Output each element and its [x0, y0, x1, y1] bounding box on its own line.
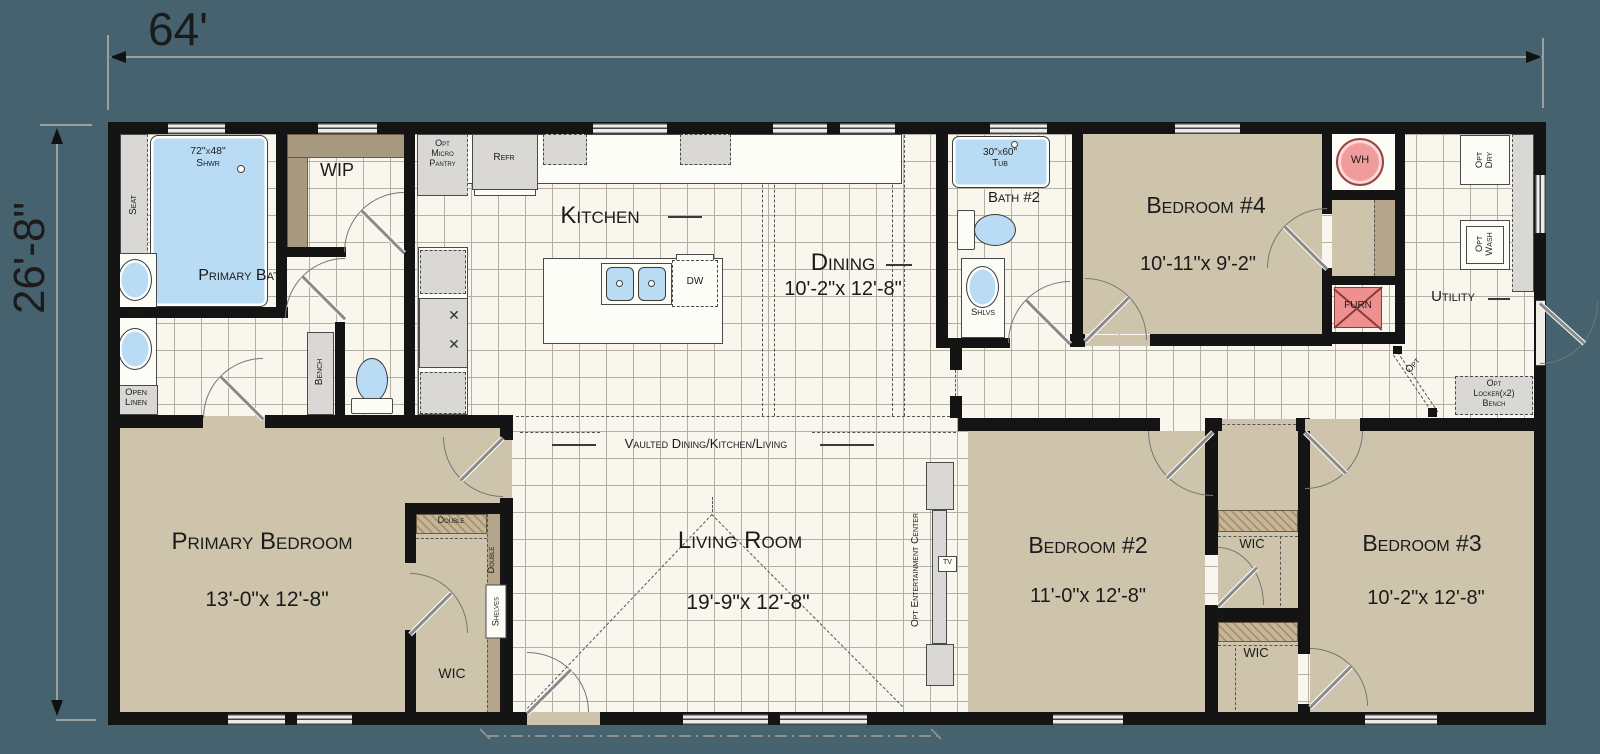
wall: [108, 415, 203, 428]
wall: [405, 630, 416, 713]
wall: [405, 503, 513, 514]
closet-rod-line: [1374, 200, 1375, 276]
furn-label: FURN: [1334, 300, 1382, 311]
wall: [276, 122, 287, 318]
leader-line: [886, 264, 912, 266]
double-sink-label: DS: [122, 308, 150, 320]
wall: [1332, 276, 1395, 285]
burner-icons: ✕ ✕: [441, 301, 467, 360]
toilet-bowl: [356, 358, 388, 402]
room-label-bedroom3: Bedroom #3: [1318, 531, 1526, 556]
bench-label: Bench: [312, 342, 328, 402]
ceiling-break-line: [516, 416, 950, 417]
floorplan-canvas: ✕ ✕: [0, 0, 1600, 754]
window: [773, 123, 827, 134]
arrow-down-icon: [51, 700, 63, 716]
window: [1053, 714, 1123, 725]
wall: [958, 418, 1160, 431]
double-rod-label: Double: [484, 530, 500, 590]
room-label-wip: WIP: [305, 161, 369, 181]
faucet: [616, 280, 623, 287]
porch-end-tick: [930, 728, 941, 739]
open-linen-label: Open Linen: [114, 388, 158, 409]
window: [990, 123, 1047, 134]
room-label-living: Living Room: [634, 528, 846, 554]
window: [168, 123, 225, 134]
room-label-primary-bath: Primary Bath: [168, 267, 318, 285]
wall: [405, 503, 416, 563]
window: [297, 714, 352, 725]
window: [228, 714, 285, 725]
wall: [404, 122, 415, 418]
room-label-utility: Utility: [1411, 289, 1495, 306]
dimension-width-label: 64': [138, 4, 218, 55]
double-rod-label: Double: [420, 516, 482, 526]
wall: [1150, 334, 1332, 346]
arrow-right-icon: [1526, 51, 1542, 63]
wall: [335, 322, 345, 415]
leader-line: [820, 444, 874, 446]
seat-label: Seat: [126, 175, 142, 235]
wall-stub: [950, 348, 962, 370]
upper-cabinet: [680, 134, 731, 165]
window: [1535, 175, 1546, 233]
opt-entertainment-label: Opt Entertainment Center: [908, 445, 924, 695]
washer-dryer-recess: [1512, 134, 1534, 292]
opt-locker-label: Opt Locker(x2) Bench: [1455, 379, 1533, 409]
bath2-sink: [966, 266, 999, 308]
ent-center-cabinet: [926, 462, 954, 510]
wic-rod-line: [416, 538, 487, 539]
base-cabinet: [420, 250, 466, 294]
opt-dry-label: Opt Dry: [1473, 135, 1497, 185]
wall: [1322, 122, 1332, 214]
wall: [1072, 122, 1083, 346]
extension-line: [107, 35, 109, 110]
leader-line: [552, 444, 596, 446]
room-size-primary-bedroom: 13'-0"x 12'-8": [171, 588, 363, 611]
shelves-label: Shelves: [486, 585, 507, 639]
wall: [1322, 332, 1405, 344]
opt-micro-pantry-label: Opt Micro Pantry: [417, 139, 468, 169]
tv-label: TV: [938, 559, 957, 567]
opt-door-stop: [1428, 408, 1437, 417]
wall: [1395, 122, 1405, 344]
vault-apex-tick: [712, 497, 713, 512]
arrow-up-icon: [51, 128, 63, 144]
room-size-dining: 10'-2"x 12'-8": [757, 278, 929, 300]
shower-label: 72"x48" Shwr: [165, 146, 251, 169]
dw-label: DW: [672, 276, 718, 287]
opt-porch-line: [487, 735, 937, 737]
room-label-bedroom2: Bedroom #2: [984, 533, 1192, 558]
wic-label: WIC: [1222, 537, 1282, 551]
wall: [276, 247, 346, 257]
room-label-bedroom4: Bedroom #4: [1100, 193, 1312, 218]
room-label-bath2: Bath #2: [962, 190, 1066, 207]
wip-counter: [287, 134, 406, 158]
wic-label: WIC: [422, 666, 482, 681]
window: [780, 714, 867, 725]
wic-opening-line: [1222, 424, 1296, 425]
wall: [1360, 418, 1544, 431]
vaulted-note: Vaulted Dining/Kitchen/Living: [593, 437, 819, 451]
refrigerator-handle: [474, 189, 536, 196]
vanity-sink: [118, 259, 152, 301]
upper-cabinet: [543, 134, 587, 165]
refr-label: Refr: [472, 152, 536, 163]
faucet: [648, 280, 655, 287]
wall: [1332, 190, 1395, 200]
room-label-kitchen: Kitchen: [530, 203, 670, 229]
opt-door-stop: [1393, 346, 1402, 354]
window: [1175, 123, 1240, 134]
shlvs-label: Shlvs: [959, 308, 1007, 318]
window: [593, 123, 667, 134]
arrow-left-icon: [110, 51, 126, 63]
wall: [265, 415, 513, 428]
room-label-primary-bedroom: Primary Bedroom: [136, 529, 388, 555]
toilet-bowl: [974, 214, 1016, 246]
extension-line: [1542, 38, 1544, 108]
door-threshold: [1305, 419, 1360, 431]
wall: [1205, 608, 1310, 622]
wic-label: WIC: [1226, 646, 1286, 660]
ceiling-break-line: [812, 432, 956, 433]
dimension-line-top: [110, 56, 1542, 58]
ent-center-cabinet: [926, 644, 954, 686]
cased-opening-line: [955, 370, 956, 396]
wic-rod-shelf: [1218, 510, 1298, 532]
extension-line: [56, 719, 96, 721]
wic-rod-shelf: [1218, 622, 1298, 642]
room-size-living: 19'-9"x 12'-8": [652, 591, 844, 614]
room-size-bedroom4: 10'-11"x 9'-2": [1104, 253, 1292, 275]
wall-stub: [950, 396, 962, 418]
toilet-tank: [351, 398, 393, 414]
wic-opening-threshold: [1222, 419, 1296, 431]
porch-end-tick: [479, 728, 490, 739]
bedroom4-closet-rod: [1374, 200, 1395, 276]
dimension-height-label: 26'-8": [2, 178, 58, 338]
vanity-sink: [118, 328, 152, 370]
room-size-bedroom2: 11'-0"x 12'-8": [994, 585, 1182, 607]
tub-label: 30"x60" Tub: [962, 147, 1038, 169]
door-threshold: [527, 712, 600, 725]
leader-line: [1488, 298, 1510, 300]
window: [683, 714, 768, 725]
window: [840, 123, 895, 134]
extension-line: [40, 124, 92, 126]
wall: [936, 338, 1010, 348]
ceiling-break-line: [520, 432, 600, 433]
ent-center-shelf: [932, 510, 947, 644]
wall: [936, 122, 948, 348]
room-size-bedroom3: 10'-2"x 12'-8": [1330, 587, 1522, 609]
window: [318, 123, 377, 134]
toilet-tank: [957, 210, 975, 250]
base-cabinet: [420, 372, 466, 414]
wh-label: WH: [1336, 154, 1384, 166]
opt-wash-label: Opt Wash: [1473, 219, 1497, 269]
window: [1365, 714, 1437, 725]
leader-line: [668, 216, 702, 218]
